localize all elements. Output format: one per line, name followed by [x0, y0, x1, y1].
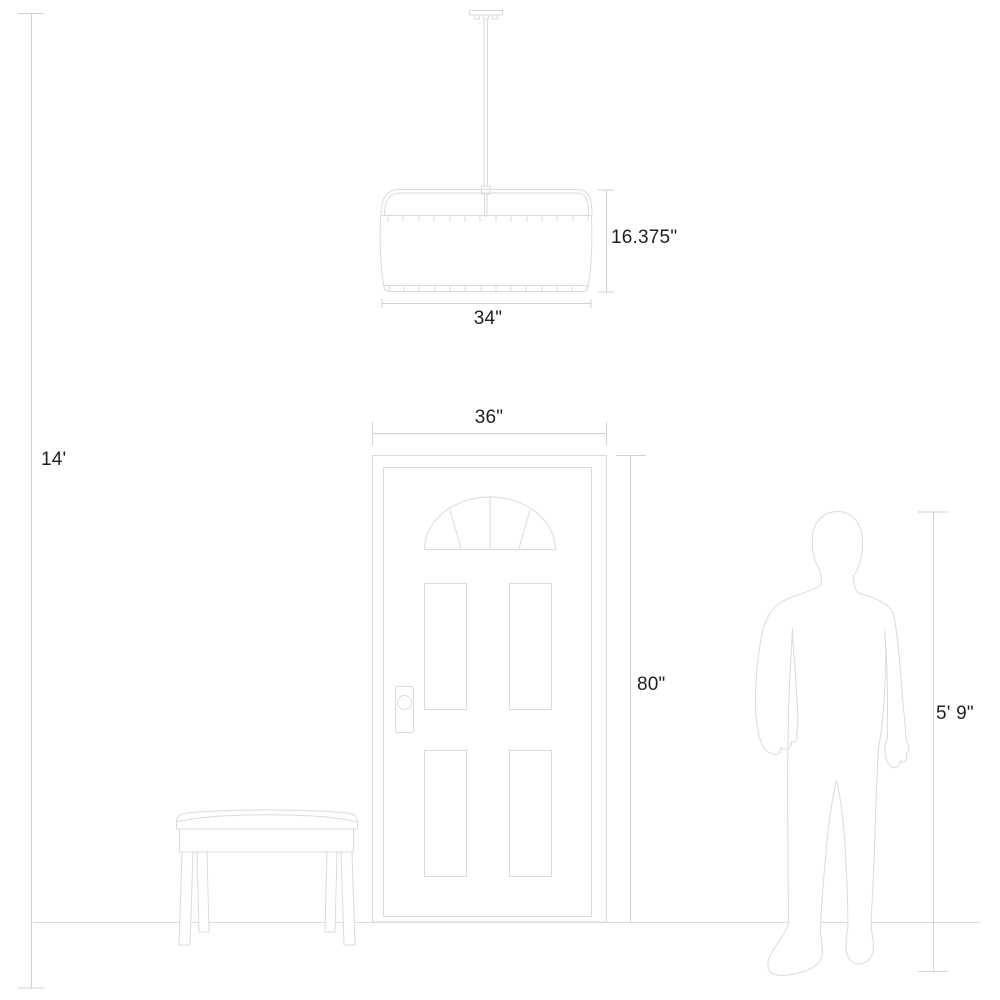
ceiling-height-label: 14'	[41, 450, 66, 469]
door	[373, 456, 607, 923]
fixture-width-dimension-line	[382, 299, 591, 308]
shade-bottom-stitches	[389, 286, 587, 292]
ceiling-height-dimension-line	[18, 14, 44, 989]
bench-leg-back-right	[325, 852, 337, 932]
person-height-dimension-line	[918, 512, 948, 972]
person-height-label: 5' 9"	[936, 704, 974, 723]
fixture-width-label: 34"	[474, 309, 502, 328]
fixture-height-label: 16.375"	[611, 228, 677, 247]
door-width-label: 36"	[475, 408, 503, 427]
diagram-canvas	[0, 0, 1000, 1000]
bench-seat-cushion	[177, 810, 358, 829]
pendant-light	[380, 11, 592, 292]
hanging-rod	[484, 19, 488, 186]
door-height-label: 80"	[637, 675, 665, 694]
inner-stem	[485, 194, 488, 216]
bench-leg-back-left	[197, 852, 209, 932]
drum-shade	[380, 216, 592, 292]
shade-top-stitches	[388, 216, 588, 222]
dimension-diagram: 14' 16.375" 34" 36" 80" 5' 9"	[0, 0, 1000, 1000]
ceiling-canopy	[470, 11, 503, 20]
bench-apron	[180, 829, 354, 852]
person-silhouette	[756, 512, 909, 976]
bench-leg-front-left	[179, 852, 193, 945]
bench-leg-front-right	[341, 852, 355, 945]
bench	[177, 810, 358, 945]
